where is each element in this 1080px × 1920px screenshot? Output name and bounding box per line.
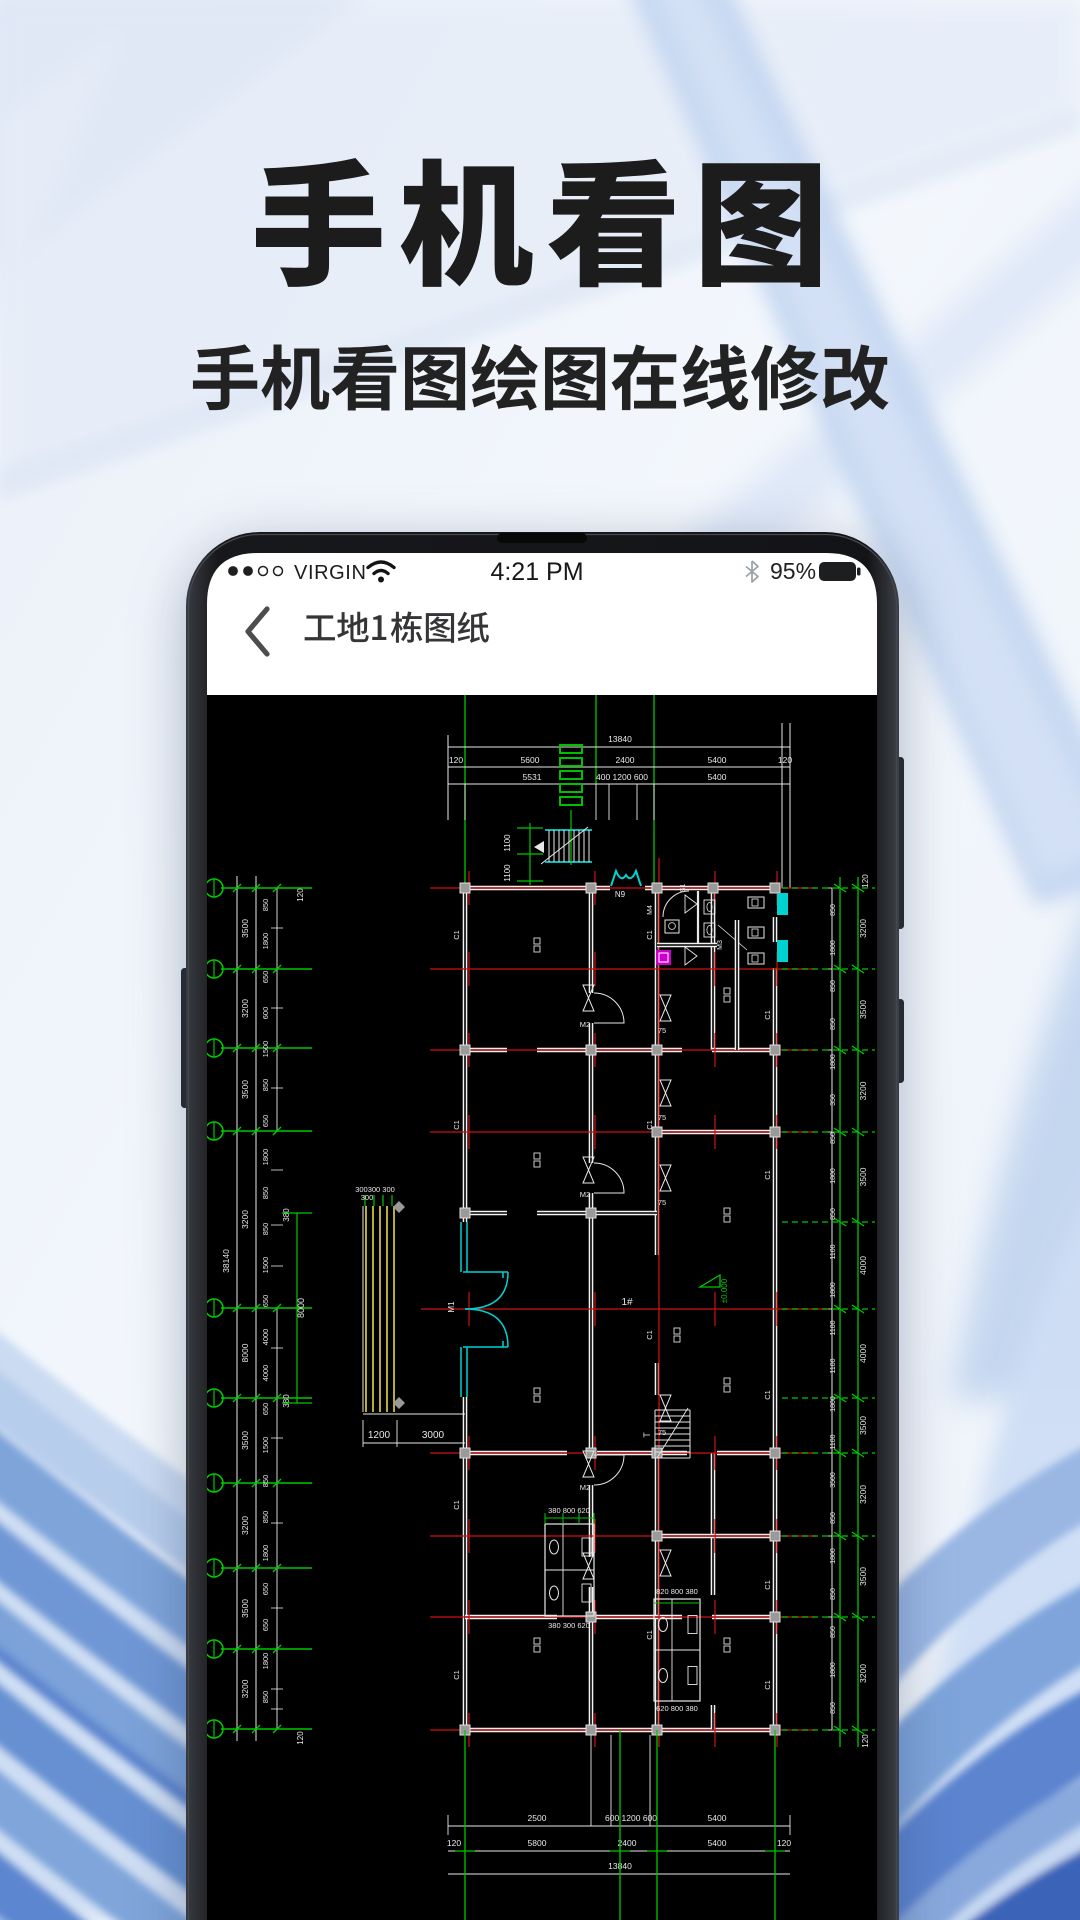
svg-text:C1: C1	[763, 1580, 772, 1590]
svg-text:300: 300	[361, 1193, 374, 1202]
svg-text:850: 850	[830, 1132, 837, 1144]
svg-text:3500: 3500	[240, 1431, 250, 1450]
svg-text:1800: 1800	[830, 1168, 837, 1184]
svg-text:650: 650	[261, 1619, 270, 1632]
svg-text:5800: 5800	[528, 1838, 547, 1848]
svg-text:1500: 1500	[261, 1257, 270, 1274]
svg-text:120: 120	[296, 888, 305, 902]
svg-text:380 300 620: 380 300 620	[548, 1621, 590, 1630]
svg-text:4000: 4000	[858, 1344, 868, 1363]
svg-text:1800: 1800	[830, 1396, 837, 1412]
svg-text:C1: C1	[452, 1120, 461, 1130]
svg-text:3200: 3200	[858, 1485, 868, 1504]
svg-text:3500: 3500	[858, 1567, 868, 1586]
svg-text:3200: 3200	[858, 1081, 868, 1100]
svg-text:C1: C1	[452, 930, 461, 940]
svg-text:2500: 2500	[528, 1813, 547, 1823]
svg-text:1800: 1800	[261, 1653, 270, 1670]
svg-text:380: 380	[282, 1208, 291, 1222]
svg-text:120: 120	[778, 755, 792, 765]
svg-text:1#: 1#	[621, 1297, 633, 1308]
svg-text:1100: 1100	[503, 834, 512, 852]
svg-text:650: 650	[261, 1583, 270, 1596]
svg-text:C1: C1	[452, 1500, 461, 1510]
svg-text:650: 650	[261, 1115, 270, 1128]
svg-text:1800: 1800	[830, 1054, 837, 1070]
svg-text:3000: 3000	[422, 1430, 445, 1441]
svg-text:75: 75	[658, 1026, 666, 1035]
svg-text:C1: C1	[763, 1390, 772, 1400]
svg-text:5400: 5400	[708, 772, 727, 782]
svg-text:400 1200 600: 400 1200 600	[596, 772, 648, 782]
svg-text:3500: 3500	[858, 1000, 868, 1019]
svg-text:3500: 3500	[858, 1416, 868, 1435]
svg-text:3200: 3200	[858, 1664, 868, 1683]
svg-text:75: 75	[658, 1428, 666, 1437]
svg-text:13840: 13840	[608, 734, 632, 744]
svg-text:350: 350	[830, 1094, 837, 1106]
svg-text:C1: C1	[452, 1670, 461, 1680]
svg-text:380 800 620: 380 800 620	[548, 1506, 590, 1515]
svg-text:C1: C1	[645, 930, 654, 940]
svg-text:1100: 1100	[830, 1358, 837, 1373]
svg-text:1100: 1100	[503, 864, 512, 882]
svg-text:±0.000: ±0.000	[720, 1278, 729, 1303]
svg-text:C1: C1	[645, 1330, 654, 1340]
svg-text:T: T	[642, 1432, 652, 1438]
svg-text:1500: 1500	[261, 1041, 270, 1058]
svg-text:620 800 380: 620 800 380	[656, 1704, 698, 1713]
svg-text:850: 850	[830, 1208, 837, 1220]
svg-text:1800: 1800	[261, 1545, 270, 1562]
svg-text:1100: 1100	[830, 1320, 837, 1335]
svg-text:3200: 3200	[240, 1516, 250, 1535]
svg-text:3200: 3200	[240, 1210, 250, 1229]
svg-text:5400: 5400	[708, 1838, 727, 1848]
svg-text:M3: M3	[717, 940, 724, 950]
svg-text:850: 850	[261, 1475, 270, 1488]
svg-text:C1: C1	[763, 1170, 772, 1180]
svg-text:850: 850	[830, 1702, 837, 1714]
svg-text:4000: 4000	[858, 1256, 868, 1275]
svg-text:3200: 3200	[240, 999, 250, 1018]
svg-text:75: 75	[658, 1113, 666, 1122]
svg-text:1800: 1800	[830, 1282, 837, 1298]
svg-text:1800: 1800	[261, 1149, 270, 1166]
svg-text:1500: 1500	[261, 1437, 270, 1454]
svg-text:120: 120	[777, 1838, 791, 1848]
svg-text:5400: 5400	[708, 755, 727, 765]
svg-text:1200: 1200	[368, 1430, 391, 1441]
svg-text:120: 120	[449, 755, 463, 765]
svg-text:850: 850	[830, 1018, 837, 1030]
svg-text:5400: 5400	[708, 1813, 727, 1823]
svg-text:1800: 1800	[830, 1662, 837, 1678]
svg-text:5600: 5600	[521, 755, 540, 765]
svg-text:M2: M2	[580, 1020, 590, 1029]
svg-text:650: 650	[261, 1403, 270, 1416]
svg-text:2400: 2400	[616, 755, 635, 765]
svg-text:4000: 4000	[261, 1329, 270, 1346]
svg-text:N9: N9	[615, 890, 626, 899]
svg-text:C1: C1	[645, 1630, 654, 1640]
svg-text:850: 850	[830, 904, 837, 916]
svg-text:1100: 1100	[830, 1244, 837, 1259]
svg-text:600 1200 600: 600 1200 600	[605, 1813, 657, 1823]
svg-text:1800: 1800	[830, 940, 837, 956]
svg-text:8000: 8000	[296, 1298, 306, 1318]
svg-text:75: 75	[658, 1198, 666, 1207]
svg-text:120: 120	[861, 1734, 870, 1748]
svg-text:120: 120	[447, 1838, 461, 1848]
svg-text:1800: 1800	[261, 933, 270, 950]
svg-text:3500: 3500	[240, 919, 250, 938]
svg-text:4000: 4000	[261, 1365, 270, 1382]
svg-text:3200: 3200	[858, 919, 868, 938]
svg-text:650: 650	[261, 1295, 270, 1308]
svg-text:5531: 5531	[523, 772, 542, 782]
svg-text:650: 650	[261, 971, 270, 984]
svg-text:120: 120	[296, 1731, 305, 1745]
svg-text:3500: 3500	[240, 1599, 250, 1618]
svg-text:120: 120	[861, 874, 870, 888]
svg-text:M1: M1	[447, 1301, 456, 1313]
svg-text:3500: 3500	[240, 1080, 250, 1099]
svg-text:850: 850	[261, 899, 270, 912]
svg-text:850: 850	[261, 1691, 270, 1704]
svg-text:850: 850	[261, 1223, 270, 1236]
svg-text:380: 380	[282, 1394, 291, 1408]
svg-text:C1: C1	[645, 1120, 654, 1130]
svg-text:850: 850	[830, 1588, 837, 1600]
svg-text:1800: 1800	[830, 1548, 837, 1564]
svg-text:820 800 380: 820 800 380	[656, 1587, 698, 1596]
svg-text:850: 850	[261, 1511, 270, 1524]
svg-text:850: 850	[830, 980, 837, 992]
svg-text:3500: 3500	[858, 1167, 868, 1186]
svg-text:3500: 3500	[830, 1472, 837, 1488]
svg-text:M2: M2	[580, 1190, 590, 1199]
svg-text:M4: M4	[647, 905, 654, 915]
svg-text:C1: C1	[763, 1680, 772, 1690]
svg-text:C1: C1	[763, 1010, 772, 1020]
svg-text:M2: M2	[580, 1483, 590, 1492]
svg-text:38140: 38140	[221, 1249, 231, 1273]
svg-text:850: 850	[261, 1079, 270, 1092]
svg-text:850: 850	[830, 1626, 837, 1638]
svg-text:850: 850	[261, 1187, 270, 1200]
svg-text:600: 600	[261, 1007, 270, 1020]
svg-text:8000: 8000	[240, 1343, 250, 1362]
svg-text:3200: 3200	[240, 1679, 250, 1698]
svg-text:1100: 1100	[830, 1434, 837, 1449]
svg-text:850: 850	[830, 1512, 837, 1524]
